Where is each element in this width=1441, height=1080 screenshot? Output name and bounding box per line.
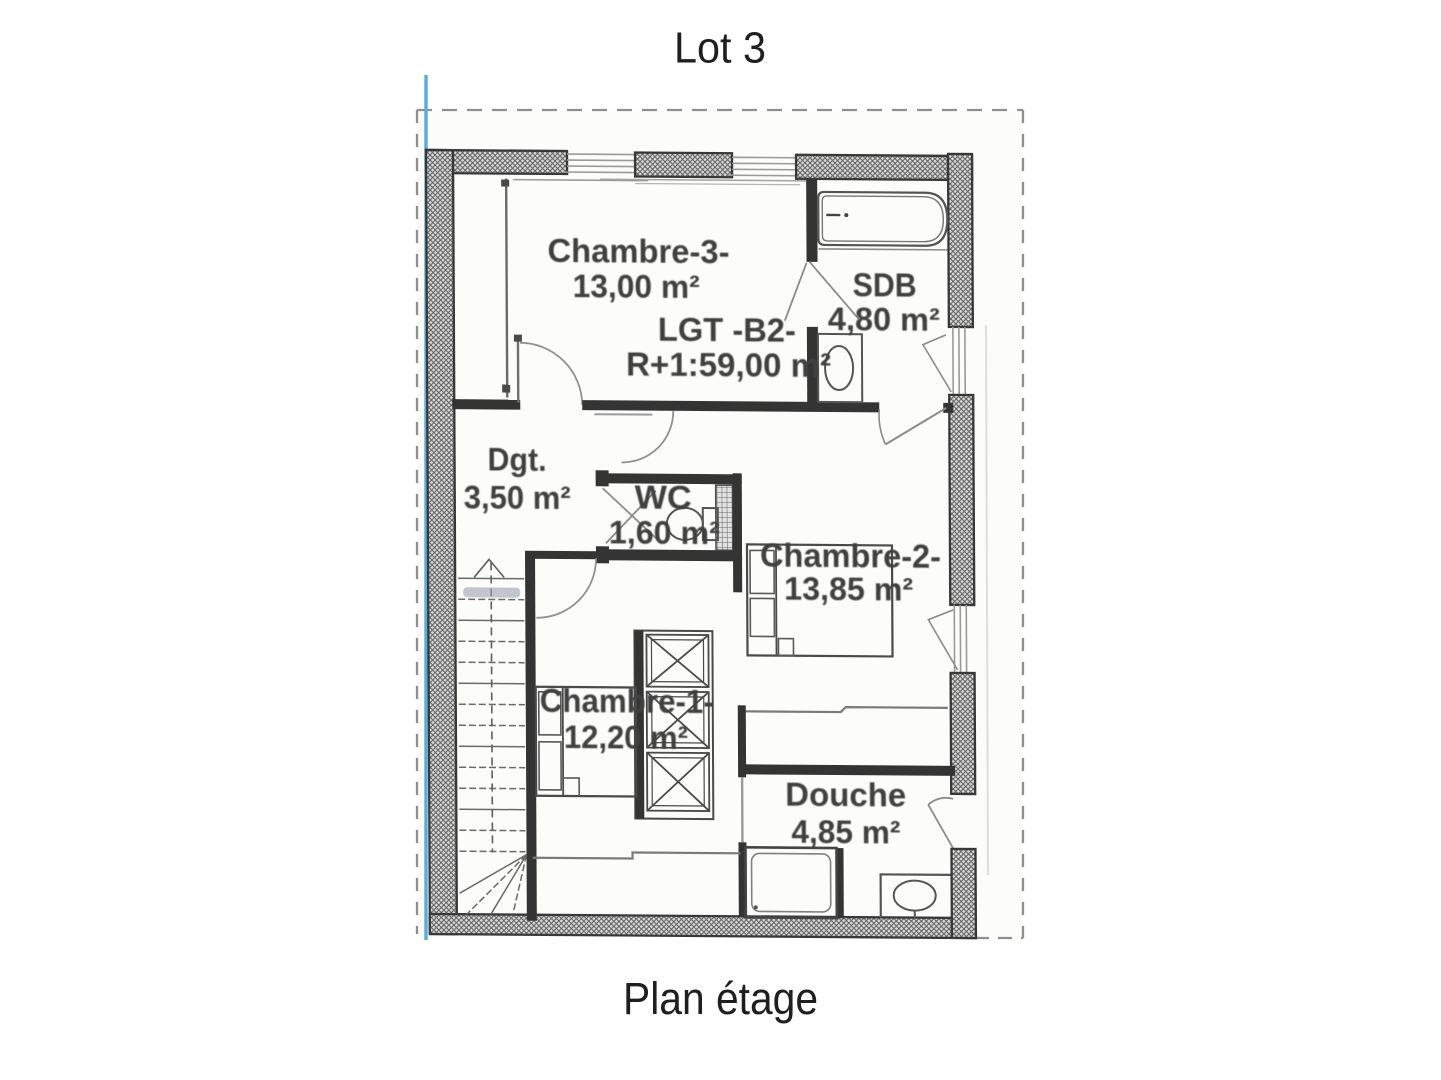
svg-text:SDB: SDB	[853, 266, 917, 303]
svg-text:12,20 m²: 12,20 m²	[564, 719, 688, 756]
svg-text:Douche: Douche	[785, 776, 906, 814]
svg-text:Plan étage: Plan étage	[623, 973, 818, 1024]
svg-text:Lot 3: Lot 3	[674, 25, 766, 73]
svg-text:Chambre-1-: Chambre-1-	[540, 682, 714, 720]
svg-text:4,80 m²: 4,80 m²	[828, 301, 940, 338]
svg-text:13,00 m²: 13,00 m²	[573, 268, 700, 305]
svg-text:13,85 m²: 13,85 m²	[784, 571, 913, 608]
svg-text:1,60 m²: 1,60 m²	[609, 514, 720, 551]
svg-text:WC: WC	[635, 479, 692, 516]
svg-text:3,50 m²: 3,50 m²	[464, 479, 571, 516]
svg-text:Dgt.: Dgt.	[487, 441, 546, 477]
svg-text:R+1:59,00 m²: R+1:59,00 m²	[626, 346, 831, 385]
svg-text:Chambre-2-: Chambre-2-	[760, 536, 941, 574]
svg-text:4,85 m²: 4,85 m²	[791, 814, 900, 851]
svg-text:Chambre-3-: Chambre-3-	[547, 232, 729, 270]
svg-text:LGT -B2-: LGT -B2-	[658, 312, 796, 350]
